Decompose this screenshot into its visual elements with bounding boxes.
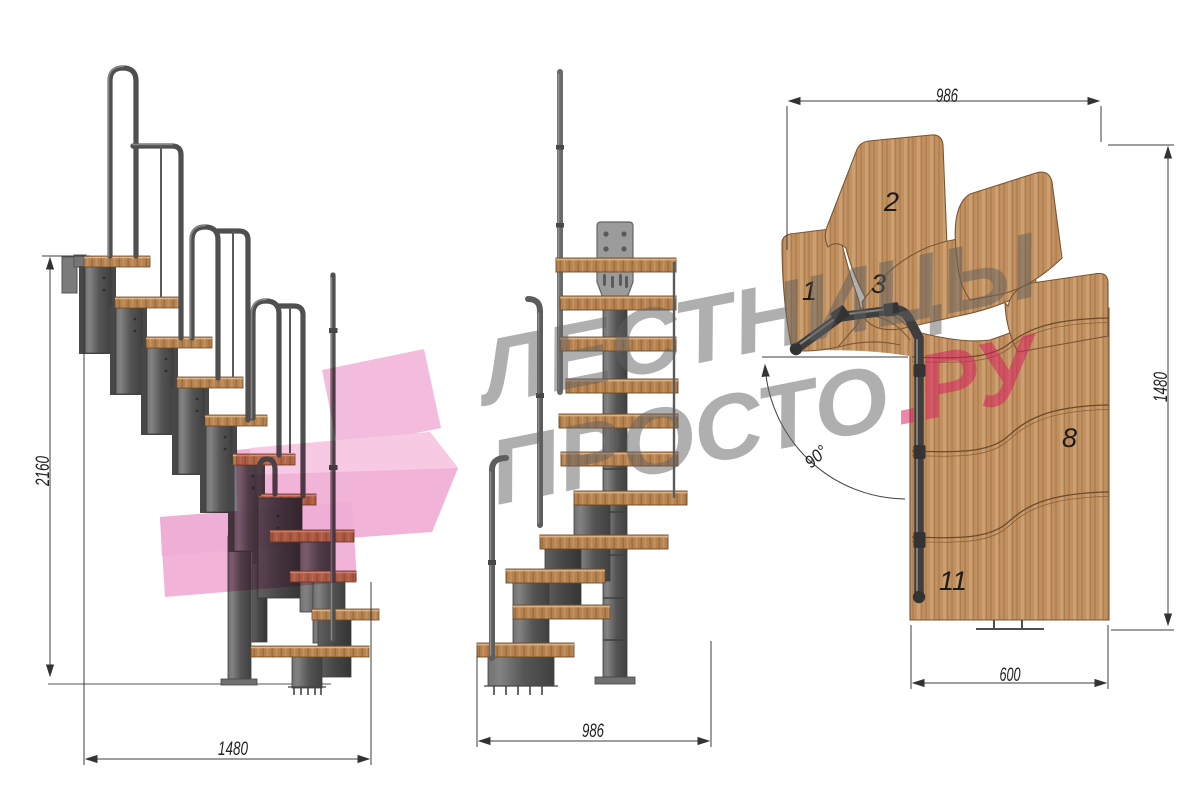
svg-text:11: 11 bbox=[939, 566, 967, 596]
svg-text:986: 986 bbox=[936, 86, 958, 107]
svg-text:1480: 1480 bbox=[218, 739, 248, 760]
svg-text:986: 986 bbox=[582, 721, 604, 742]
svg-text:1480: 1480 bbox=[1151, 372, 1172, 402]
svg-text:8: 8 bbox=[1062, 423, 1077, 453]
svg-text:2160: 2160 bbox=[33, 456, 54, 487]
svg-text:2: 2 bbox=[883, 187, 899, 217]
svg-text:600: 600 bbox=[1000, 665, 1021, 686]
